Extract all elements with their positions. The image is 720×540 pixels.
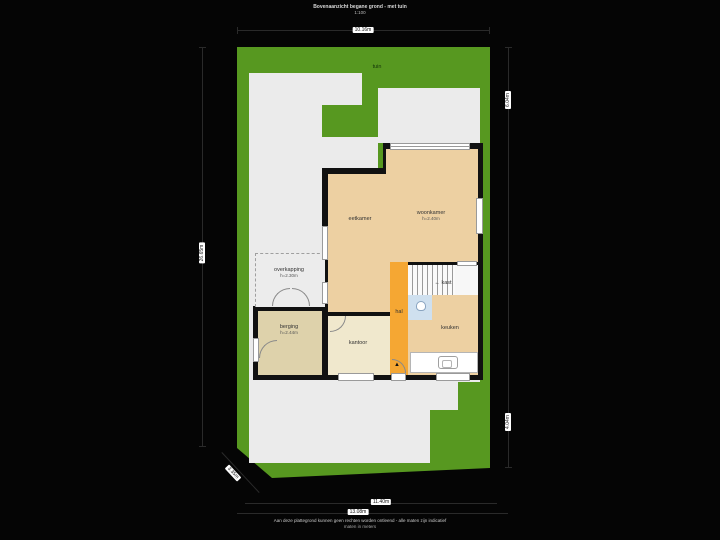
label-hal: hal: [395, 309, 402, 315]
label-overkapping-height: h=2.30m: [274, 273, 304, 279]
plan-scale: 1:100: [313, 10, 407, 15]
window-keuken-bottom: [436, 373, 470, 381]
dimension-label-diagonal: 3.35m: [225, 464, 242, 481]
toilet-icon: [416, 301, 426, 311]
label-kantoor: kantoor: [349, 340, 367, 346]
window-eetkamer-left: [322, 226, 328, 260]
kast-arrow-icon: ←: [434, 280, 440, 286]
label-kast: ← kast: [434, 280, 451, 286]
dimension-tick: [505, 47, 512, 48]
room-kast: [455, 265, 478, 295]
terrace-top-right: [378, 88, 480, 143]
room-eetkamer: [328, 174, 390, 312]
footer-disclaimer: Aan deze plattegrond kunnen geen rechten…: [274, 518, 447, 524]
dimension-tick: [199, 47, 206, 48]
garden-strip: [322, 105, 378, 137]
dimension-tick: [199, 446, 206, 447]
dimension-label-bottom-outer: 13.08m: [348, 509, 369, 515]
label-berging-height: h=2.44m: [280, 330, 298, 336]
label-berging: berging h=2.44m: [280, 324, 298, 336]
room-overkapping: [255, 253, 325, 307]
label-overkapping: overkapping h=2.30m: [274, 267, 304, 279]
footer-block: Aan deze plattegrond kunnen geen rechten…: [274, 518, 447, 529]
dimension-label-right-top: 6.04m: [505, 91, 511, 109]
label-woonkamer: woonkamer h=2.40m: [417, 210, 445, 222]
garden-label: tuin: [373, 64, 382, 70]
window-kantoor-bottom: [338, 373, 374, 381]
door-berging-left: [253, 338, 259, 362]
label-eetkamer: eetkamer: [349, 216, 372, 222]
dimension-tick: [237, 27, 238, 34]
label-woonkamer-height: h=2.40m: [417, 216, 445, 222]
dimension-tick: [505, 467, 512, 468]
dimension-tick: [489, 27, 490, 34]
window-frame-line: [390, 146, 470, 147]
dimension-label-right-bottom: 4.04m: [505, 413, 511, 431]
dimension-label-left: 26.65m: [199, 243, 205, 264]
window-woonkamer-right: [476, 198, 483, 234]
title-block: Bovenaanzicht begane grond - met tuin 1:…: [313, 4, 407, 15]
label-keuken: keuken: [441, 325, 459, 331]
room-woonkamer: [386, 149, 478, 262]
room-keuken-upper: [432, 295, 478, 320]
label-kast-name: kast: [441, 280, 451, 286]
footer-note: maten in meters: [274, 524, 447, 530]
garden-patch-bottom-right: [430, 410, 483, 463]
sink-icon: [438, 356, 458, 369]
door-eetkamer-overkapping: [322, 282, 328, 304]
dimension-label-top: 10.16m: [353, 27, 374, 33]
window-kast: [457, 261, 477, 266]
entrance-marker: ▲: [394, 362, 400, 368]
dimension-line-right: [508, 47, 509, 468]
floorplan-canvas: Bovenaanzicht begane grond - met tuin 1:…: [0, 0, 720, 540]
dimension-label-bottom-inner: 11.40m: [371, 499, 391, 505]
front-door-opening: [391, 373, 406, 381]
dimension-line-bottom-outer: [237, 513, 508, 514]
